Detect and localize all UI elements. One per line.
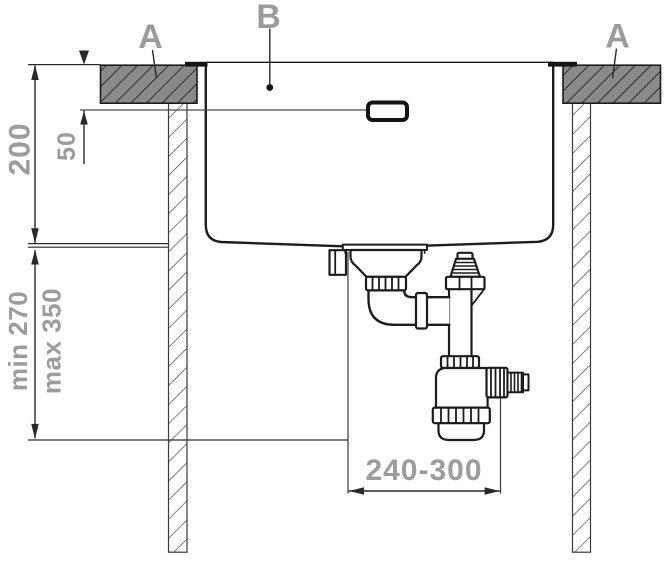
overflow-inlet [330,250,347,275]
dimension-240-300 [349,487,500,495]
branch-pipe [449,289,472,357]
sink-bowl [206,63,553,248]
overflow-opening [368,103,407,121]
trap-outlet [487,368,529,398]
worktop-right [563,65,661,103]
callout-a-left-label: A [138,18,164,56]
callout-a-right-label: A [605,18,631,56]
dimension-200-label: 200 [4,122,37,175]
flange-level-extension-lines [28,244,169,248]
drain-strainer [330,245,428,291]
sink-installation-diagram: A B A 200 50 min 270 max 350 240-300 [0,0,664,562]
trap-bottle [433,356,490,440]
outlet-tip [523,374,529,390]
drain-elbow [369,291,450,329]
drain-assembly [330,245,529,440]
callout-b-label: B [256,0,282,36]
trap-cup [439,423,485,440]
dimension-max-350-label: max 350 [37,288,67,394]
sink-rim-left [185,62,208,67]
diagram-canvas: A B A 200 50 min 270 max 350 240-300 [0,0,664,562]
pipe-coupling-ring [416,293,427,329]
cabinet-panel-right [573,103,591,552]
sink-rim-right [548,62,577,67]
worktop-left [101,65,198,103]
dimension-min-270-label: min 270 [3,291,33,391]
dimension-50-label: 50 [53,131,81,161]
dimension-240-300-label: 240-300 [365,454,482,487]
cabinet-panel-left [169,103,188,552]
trap-body [436,368,488,408]
leader-b-dot [266,84,273,91]
